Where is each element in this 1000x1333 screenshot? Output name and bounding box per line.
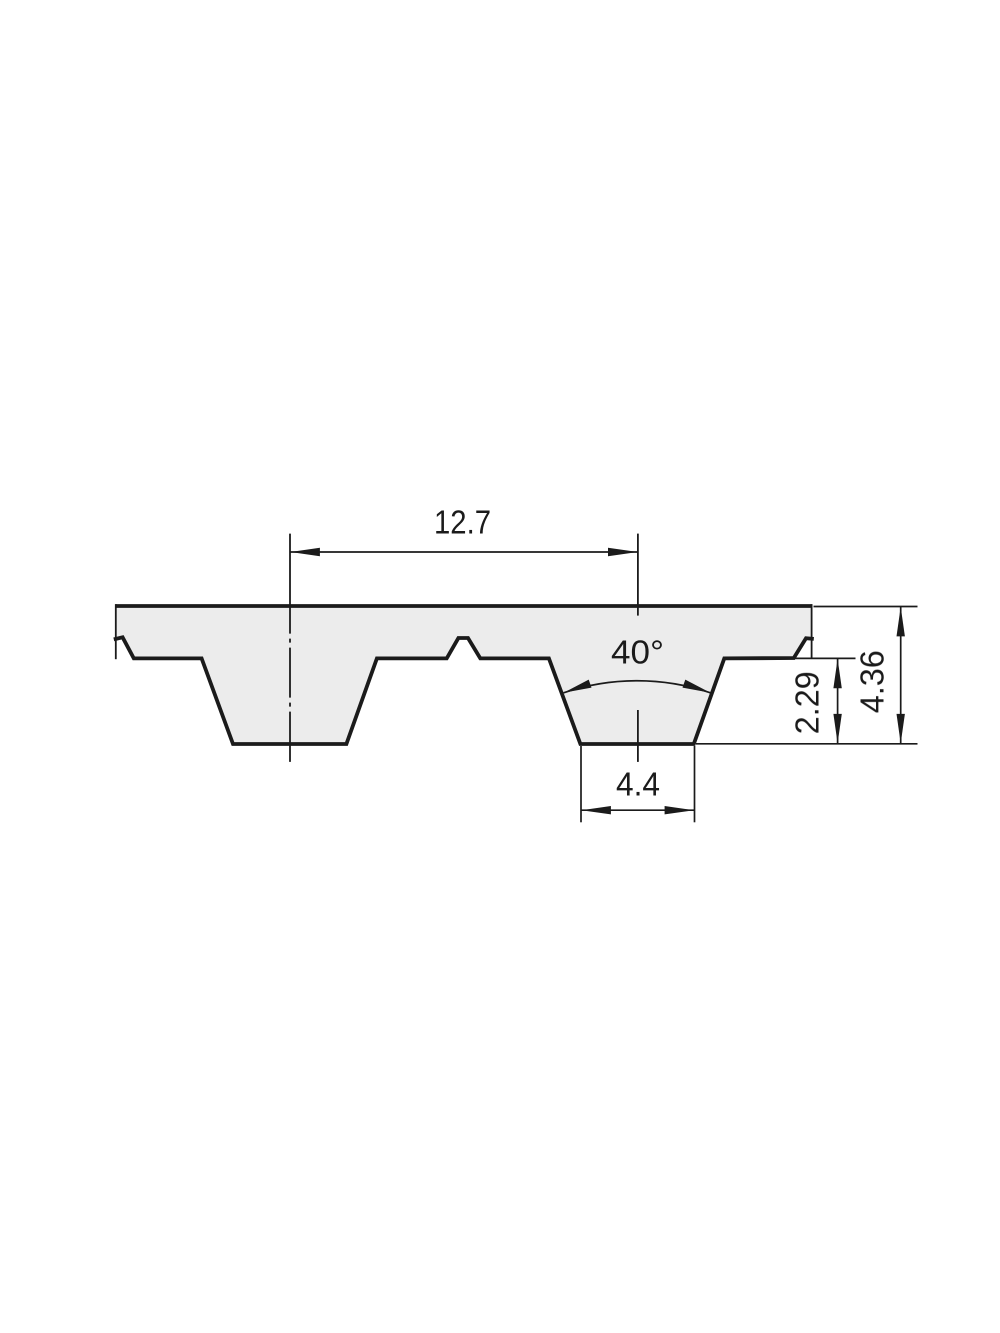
svg-text:4.4: 4.4 bbox=[616, 766, 660, 803]
svg-text:4.36: 4.36 bbox=[854, 650, 891, 713]
svg-text:2.29: 2.29 bbox=[789, 671, 826, 734]
svg-text:12.7: 12.7 bbox=[434, 504, 491, 541]
svg-text:40°: 40° bbox=[611, 634, 664, 671]
